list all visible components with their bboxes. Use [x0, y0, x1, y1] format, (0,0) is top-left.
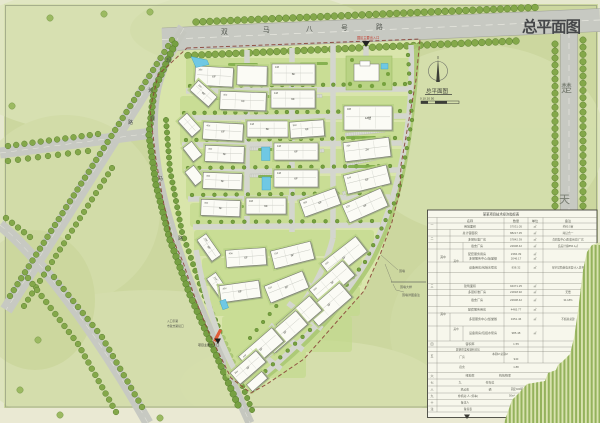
svg-text:985.48: 985.48 [512, 331, 521, 335]
svg-text:多层标准厂房: 多层标准厂房 [468, 289, 486, 294]
svg-text:某某项目技术经济指标表: 某某项目技术经济指标表 [483, 212, 520, 217]
svg-text:围墙大样: 围墙大样 [400, 284, 412, 289]
svg-text:㎡: ㎡ [534, 297, 537, 302]
svg-text:2384.39: 2384.39 [511, 252, 522, 256]
svg-text:号: 号 [341, 24, 348, 32]
svg-text:50m²: 50m² [509, 394, 515, 398]
svg-text:设备用房(包括水泵房: 设备用房(包括水泵房 [469, 330, 497, 335]
svg-text:6F: 6F [241, 99, 245, 103]
svg-text:约85.5亩: 约85.5亩 [563, 225, 574, 229]
svg-text:94371.25: 94371.25 [510, 284, 522, 288]
svg-text:建筑密度和容积对比: 建筑密度和容积对比 [456, 348, 480, 352]
svg-text:0 10 20 50: 0 10 20 50 [420, 97, 435, 101]
svg-text:㎡: ㎡ [534, 243, 537, 248]
svg-text:㎡: ㎡ [534, 289, 537, 294]
svg-text:6F: 6F [244, 255, 248, 259]
svg-text:44#: 44# [274, 92, 279, 95]
svg-text:6F: 6F [305, 127, 309, 131]
svg-text:1.55: 1.55 [513, 342, 519, 346]
svg-text:规: 规 [166, 57, 171, 64]
svg-text:本期M 总需M: 本期M 总需M [492, 352, 507, 356]
svg-text:6F: 6F [219, 206, 223, 210]
svg-text:楚: 楚 [561, 81, 572, 95]
svg-text:宿舍厂房: 宿舍厂房 [471, 297, 483, 302]
svg-text:路: 路 [376, 22, 383, 31]
svg-text:名称: 名称 [467, 218, 473, 223]
svg-text:6F: 6F [238, 289, 242, 293]
svg-text:多层服务中心(饭堂餐: 多层服务中心(饭堂餐 [469, 256, 497, 261]
svg-text:其中: 其中 [453, 327, 459, 331]
svg-text:两证合一: 两证合一 [563, 231, 574, 235]
svg-text:围墙: 围墙 [399, 268, 405, 273]
svg-text:838.32: 838.32 [512, 266, 521, 270]
svg-text:建筑面积: 建筑面积 [464, 283, 476, 288]
svg-text:㎡: ㎡ [534, 251, 537, 256]
svg-text:八: 八 [306, 26, 313, 33]
svg-text:马: 马 [263, 26, 270, 34]
svg-text:造后计容856.1㎡: 造后计容856.1㎡ [558, 244, 578, 248]
svg-text:设备用房(包括水泵房: 设备用房(包括水泵房 [469, 265, 497, 270]
svg-text:注: 注 [430, 406, 433, 411]
svg-text:6F: 6F [294, 177, 298, 181]
svg-text:八: 八 [430, 388, 433, 392]
svg-text:绿地率: 绿地率 [465, 373, 474, 378]
svg-text:备注人: 备注人 [461, 401, 470, 405]
svg-text:6F: 6F [292, 72, 296, 76]
svg-text:6F: 6F [212, 75, 216, 79]
svg-text:七: 七 [430, 380, 433, 385]
svg-text:44#: 44# [277, 145, 282, 148]
svg-text:43#: 43# [275, 66, 280, 69]
svg-text:㎡: ㎡ [534, 230, 537, 235]
svg-text:四: 四 [430, 342, 433, 346]
svg-text:总计容面积: 总计容面积 [462, 230, 477, 235]
svg-text:总平面图: 总平面图 [522, 17, 581, 36]
svg-text:九: 九 [459, 381, 462, 385]
svg-text:停车位: 停车位 [486, 380, 495, 385]
svg-text:无偿: 无偿 [565, 290, 571, 294]
svg-text:6F: 6F [266, 127, 270, 131]
svg-text:单位: 单位 [532, 218, 538, 223]
svg-text:88217.35: 88217.35 [510, 231, 522, 235]
svg-text:用地面积: 用地面积 [464, 224, 476, 229]
svg-text:三: 三 [430, 284, 433, 288]
svg-text:㎡: ㎡ [534, 307, 537, 312]
svg-text:40#: 40# [249, 200, 254, 203]
svg-text:观: 观 [150, 116, 155, 122]
svg-text:6F: 6F [291, 97, 295, 101]
svg-text:备注: 备注 [565, 218, 571, 223]
svg-text:34.18%: 34.18% [563, 298, 573, 302]
svg-text:九: 九 [430, 393, 433, 398]
svg-text:㎡: ㎡ [534, 316, 537, 321]
svg-text:1#楼: 1#楼 [365, 115, 371, 120]
svg-text:十: 十 [430, 400, 433, 405]
svg-text:构筑物率: 构筑物率 [499, 373, 511, 378]
svg-text:马: 马 [158, 175, 163, 182]
svg-text:6F: 6F [294, 150, 298, 154]
svg-text:厂房: 厂房 [459, 355, 465, 359]
svg-text:配套服务用房: 配套服务用房 [468, 307, 486, 312]
svg-text:路: 路 [178, 235, 183, 242]
svg-text:22908.42: 22908.42 [510, 298, 522, 302]
svg-text:940: 940 [514, 357, 519, 361]
svg-text:21818.92: 21818.92 [510, 290, 522, 294]
svg-text:容积率: 容积率 [465, 341, 474, 346]
svg-text:41#: 41# [250, 123, 255, 126]
svg-text:㎡: ㎡ [534, 265, 537, 270]
svg-text:辆: 辆 [489, 388, 492, 392]
svg-text:数量: 数量 [513, 218, 519, 223]
svg-text:57842.39: 57842.39 [510, 238, 522, 242]
svg-text:架空层隐蔽电无需计入总平: 架空层隐蔽电无需计入总平 [552, 266, 585, 270]
svg-text:路: 路 [128, 119, 133, 126]
svg-text:44#: 44# [277, 172, 282, 175]
svg-text:五: 五 [430, 354, 433, 358]
svg-text:入口引路: 入口引路 [167, 319, 178, 323]
svg-text:多层服务中心(饭堂餐: 多层服务中心(饭堂餐 [469, 316, 497, 321]
svg-text:总平面图: 总平面图 [426, 87, 449, 95]
svg-text:围墙详图备注: 围墙详图备注 [402, 292, 420, 297]
svg-text:含研发中心(配套用房)厂房: 含研发中心(配套用房)厂房 [552, 238, 584, 242]
svg-text:宿舍厂房: 宿舍厂房 [471, 243, 483, 248]
svg-text:备案表: 备案表 [464, 407, 473, 411]
svg-text:4465.77: 4465.77 [511, 308, 522, 312]
svg-text:园区主要出入口: 园区主要出入口 [357, 35, 379, 40]
svg-text:二: 二 [430, 236, 433, 240]
svg-text:2046.17: 2046.17 [511, 257, 522, 261]
svg-text:市政支路接口: 市政支路接口 [167, 324, 184, 328]
svg-text:㎡: ㎡ [534, 256, 537, 261]
svg-text:项目主要出入口: 项目主要出入口 [198, 342, 219, 347]
svg-text:22908.42: 22908.42 [510, 244, 522, 248]
svg-text:划: 划 [148, 87, 153, 94]
svg-text:双: 双 [221, 28, 228, 36]
svg-text:不超总总建: 不超总总建 [561, 317, 575, 321]
svg-text:配套服务用房: 配套服务用房 [468, 251, 486, 256]
svg-text:㎡: ㎡ [534, 224, 537, 229]
svg-text:非机动 人 (停车): 非机动 人 (停车) [458, 394, 478, 398]
svg-text:天: 天 [559, 194, 570, 206]
svg-text:1.88: 1.88 [513, 365, 519, 369]
svg-text:48#: 48# [347, 108, 352, 111]
svg-text:多层标准厂房: 多层标准厂房 [468, 237, 486, 242]
svg-text:57031.05: 57031.05 [510, 225, 522, 229]
svg-text:㎡: ㎡ [534, 330, 537, 335]
svg-text:6F: 6F [223, 152, 227, 156]
svg-text:其中: 其中 [453, 259, 459, 263]
svg-text:6F: 6F [221, 130, 225, 134]
svg-text:6F: 6F [221, 179, 225, 183]
svg-text:㎡: ㎡ [534, 237, 537, 242]
svg-text:一: 一 [430, 223, 433, 227]
svg-text:3451.46: 3451.46 [511, 317, 522, 321]
svg-text:其中: 其中 [440, 255, 446, 259]
svg-text:6F: 6F [264, 204, 268, 208]
svg-text:㎡: ㎡ [534, 283, 537, 288]
svg-text:宿舍: 宿舍 [459, 365, 465, 369]
svg-text:六: 六 [430, 373, 433, 378]
svg-text:机动车: 机动车 [461, 387, 470, 392]
svg-text:其中: 其中 [440, 312, 446, 316]
